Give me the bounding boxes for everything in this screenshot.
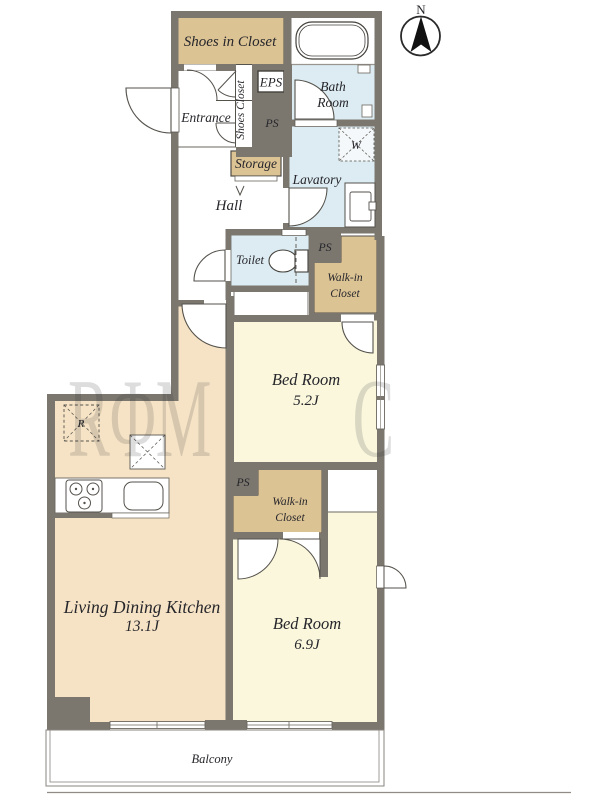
svg-text:Bath: Bath [320, 79, 346, 94]
svg-text:Bed Room: Bed Room [273, 614, 341, 633]
svg-text:Living Dining Kitchen: Living Dining Kitchen [63, 597, 221, 617]
svg-text:Closet: Closet [275, 512, 305, 524]
svg-text:Lavatory: Lavatory [292, 172, 342, 187]
svg-text:Shoes Closet: Shoes Closet [235, 80, 247, 140]
svg-text:Bed Room: Bed Room [272, 370, 340, 389]
svg-text:Hall: Hall [215, 198, 243, 214]
svg-text:PS: PS [235, 475, 249, 489]
svg-text:Walk-in: Walk-in [327, 272, 363, 284]
svg-text:13.1J: 13.1J [125, 618, 160, 635]
svg-text:N: N [416, 2, 426, 17]
svg-text:Storage: Storage [235, 156, 277, 171]
svg-text:PS: PS [264, 116, 278, 130]
svg-text:Room: Room [316, 95, 349, 110]
svg-text:Entrance: Entrance [180, 110, 231, 125]
svg-text:PS: PS [317, 240, 331, 254]
svg-text:5.2J: 5.2J [293, 393, 320, 409]
svg-text:EPS: EPS [259, 75, 283, 90]
svg-text:Closet: Closet [330, 288, 360, 300]
svg-text:RΦM: RΦM [68, 356, 211, 481]
svg-text:Shoes in Closet: Shoes in Closet [184, 34, 277, 50]
svg-text:W: W [351, 138, 362, 152]
svg-text:6.9J: 6.9J [294, 637, 321, 653]
svg-text:C: C [352, 356, 394, 481]
svg-text:Balcony: Balcony [192, 752, 233, 766]
svg-text:Toilet: Toilet [236, 253, 265, 267]
svg-text:Walk-in: Walk-in [272, 496, 308, 508]
